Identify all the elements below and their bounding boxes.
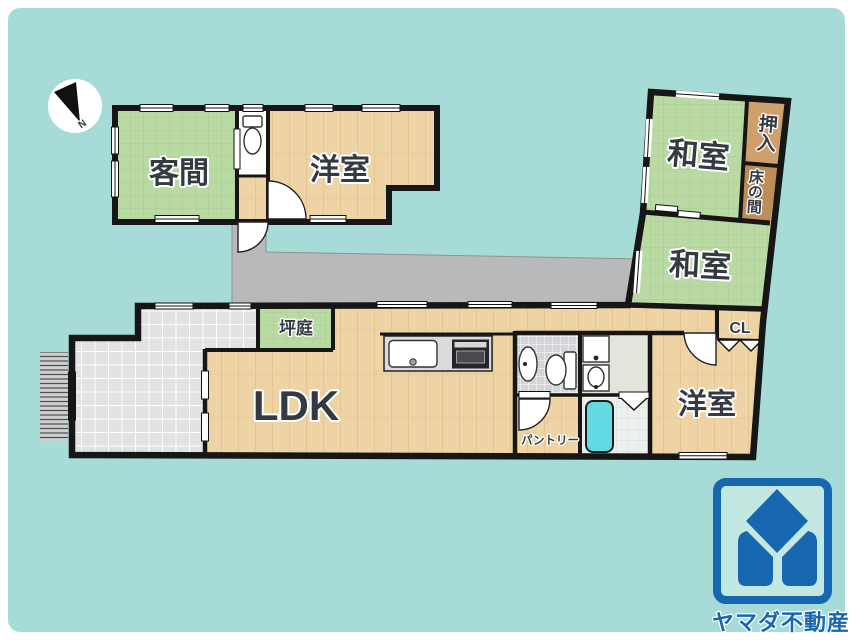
kitchen-counter [384,336,492,371]
label-cl: CL [729,320,751,337]
label-yoshitsu-upper: 洋室 [310,153,370,187]
faucet-icon [410,359,416,365]
label-oshiire: 押入 [753,112,778,153]
floor-plan: N [0,0,853,640]
toilet-icon [243,116,262,154]
label-yoshitsu-lower: 洋室 [678,387,736,421]
compass: N [48,79,102,133]
label-kyakuma: 客間 [149,156,209,190]
sliding-door [234,129,240,169]
label-ldk: LDK [253,382,339,429]
floor-plan-canvas: N [0,0,853,640]
deck-hatch [40,352,68,441]
label-tsuboniwa: 坪庭 [279,318,313,338]
bathtub [586,401,613,452]
label-washitsu-upper: 和室 [666,135,731,175]
hallway-upper [237,176,268,219]
label-pantry: パントリー [521,434,579,447]
sink-icon [519,347,537,381]
company-logo: ヤマダ不動産 [712,482,850,635]
company-name: ヤマダ不動産 [712,610,850,635]
stove-icon [452,340,489,369]
label-tokonoma: 床の間 [744,168,764,216]
label-washitsu-lower: 和室 [668,246,732,284]
toilet-icon [546,355,566,385]
